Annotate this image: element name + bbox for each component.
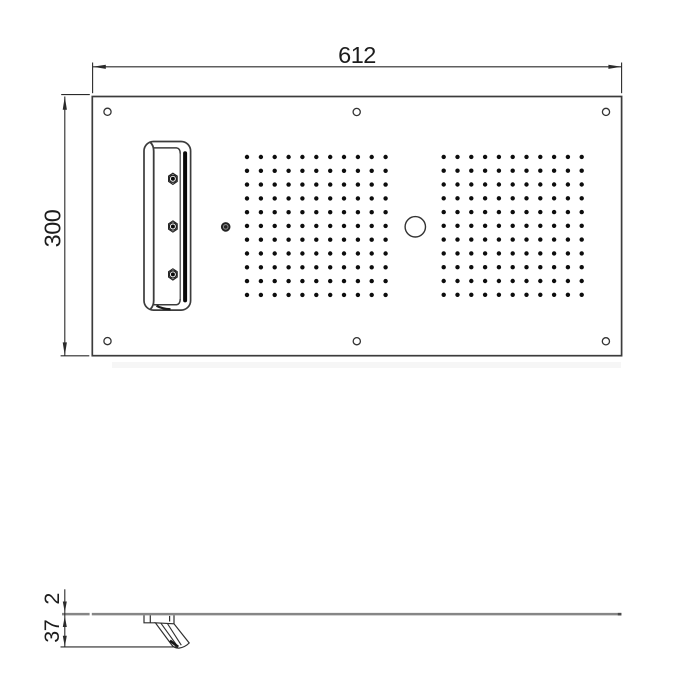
svg-text:300: 300 (40, 209, 66, 247)
svg-text:612: 612 (338, 42, 376, 68)
svg-text:2: 2 (40, 593, 64, 604)
svg-text:37: 37 (40, 620, 64, 643)
